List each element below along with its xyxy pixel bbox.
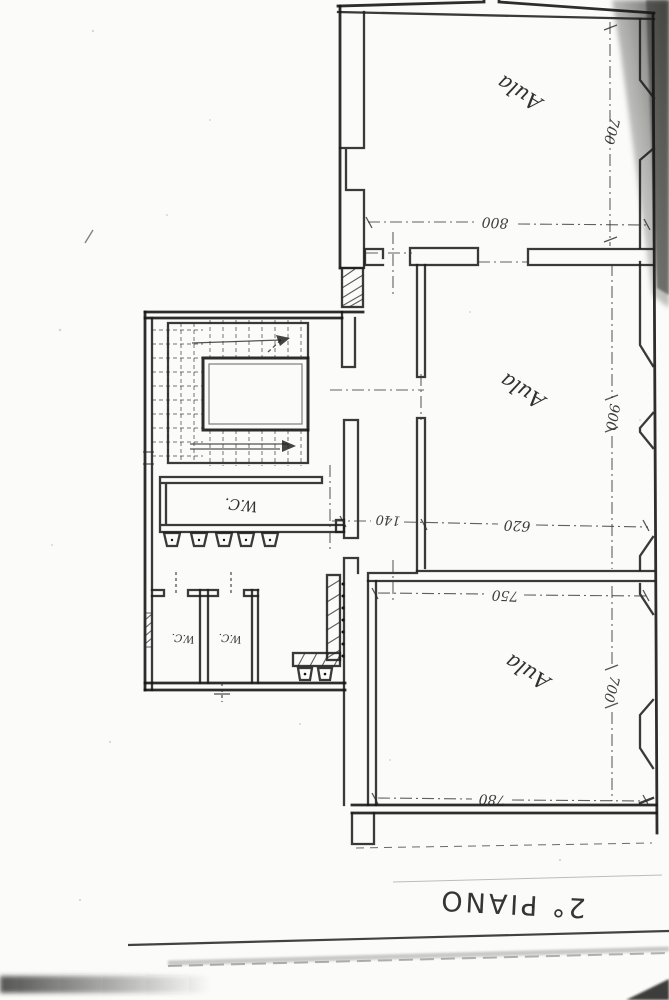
wall-top-mid-right [528,249,654,265]
wall-top-mid-left-pier [365,249,383,265]
wall-mid-bottom [368,571,654,581]
dim-line-below-plan [356,843,652,848]
partition-hatch [327,580,340,658]
dim-label-620: 620 [503,516,531,533]
room-label-aula-top: Aula [493,70,548,117]
dim-label-900: 900 [602,402,622,431]
sheet-border-line [128,931,669,945]
wall-top-mid-pier [410,248,478,265]
room-label-wc-left: W.C. [171,631,195,645]
scan-artifacts [0,0,669,1000]
dim-line-780 [378,798,648,801]
urinal-row [164,533,278,546]
title-stray-dot [532,906,535,909]
dim-label-800: 800 [481,213,509,230]
window-block-hatch [342,269,363,307]
faint-fold-line [393,875,662,882]
staircase [152,320,308,466]
stair-island-inner [209,364,302,424]
cubicle-front-walls [152,590,258,596]
wall-corridor-east [344,420,358,805]
room-label-aula-bottom: Aula [501,649,556,696]
wall-bottom-room-left [368,581,376,805]
room-label-wc-right: W.C. [218,631,242,645]
labels: Aula Aula Aula W.C. W.C. W.C. 700 800 90… [171,70,622,923]
wall-stair-top [145,312,363,318]
wall-wing-bottom [145,683,345,690]
wall-stair-east [342,312,355,367]
dim-label-700-bottom: 700 [600,674,622,704]
wall-top-outer [338,0,654,13]
wall-upper-left-inner [340,12,364,268]
stair-island [203,358,308,430]
dimension-lines [330,22,652,848]
opening-axes [330,232,528,604]
bottom-right-dark-wedge [626,979,669,1000]
partition-and-sinks [293,575,345,680]
sink-icon [298,668,332,680]
floor-title: 2° PIANO [438,884,587,923]
room-label-aula-middle: Aula [496,368,551,415]
stray-pen-mark [85,230,93,243]
scanned-floor-plan-sheet: Aula Aula Aula W.C. W.C. W.C. 700 800 90… [0,0,669,1000]
dim-label-780: 780 [478,790,506,807]
room-label-wc-main: W.C. [224,494,259,515]
bottom-left-smudge [0,976,210,993]
floor-plan-drawing: Aula Aula Aula W.C. W.C. W.C. 700 800 90… [0,0,669,1000]
dim-label-750: 750 [491,586,519,603]
scan-fuzzy-band [168,949,669,963]
wall-bottom-stub [352,813,374,844]
interior-walls [336,248,656,844]
dim-label-700-top: 700 [600,116,622,146]
stair-direction-arrow-down [190,440,296,452]
dim-label-140: 140 [375,511,401,527]
wall-top-inner [338,12,654,19]
partition-strip [327,575,340,660]
